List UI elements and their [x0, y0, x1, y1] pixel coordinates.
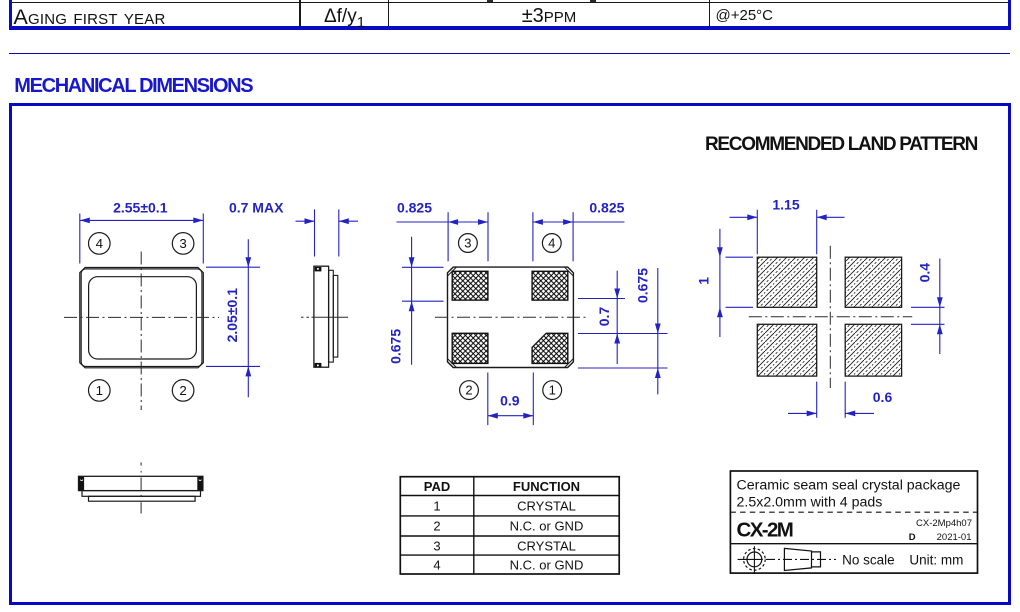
svg-text:1: 1 [695, 277, 711, 285]
svg-text:0.675: 0.675 [635, 268, 651, 303]
svg-text:0.825: 0.825 [589, 200, 624, 216]
svg-text:2021-01: 2021-01 [937, 532, 972, 543]
svg-text:0.6: 0.6 [873, 389, 893, 405]
svg-text:2: 2 [465, 382, 472, 397]
svg-text:2.5x2.0mm with 4 pads: 2.5x2.0mm with 4 pads [737, 495, 883, 511]
svg-text:N.C. or GND: N.C. or GND [510, 519, 584, 534]
svg-text:4: 4 [96, 236, 103, 251]
svg-text:1: 1 [433, 499, 440, 514]
svg-text:3: 3 [464, 235, 471, 250]
svg-text:4: 4 [433, 557, 440, 572]
svg-text:2: 2 [433, 519, 440, 534]
svg-text:0.7: 0.7 [596, 307, 612, 327]
svg-text:0.7 MAX: 0.7 MAX [229, 200, 284, 216]
svg-text:CX-2Mp4h07: CX-2Mp4h07 [916, 518, 972, 529]
svg-text:3: 3 [433, 538, 440, 553]
svg-text:0.9: 0.9 [500, 392, 520, 408]
svg-text:Unit: mm: Unit: mm [909, 553, 963, 568]
svg-text:0.4: 0.4 [917, 263, 933, 283]
svg-text:No scale: No scale [842, 553, 895, 568]
svg-text:0.675: 0.675 [388, 329, 404, 364]
svg-text:2.55±0.1: 2.55±0.1 [113, 200, 168, 216]
svg-text:Ceramic seam seal crystal pack: Ceramic seam seal crystal package [737, 478, 961, 494]
svg-text:FUNCTION: FUNCTION [513, 479, 580, 494]
svg-text:CRYSTAL: CRYSTAL [517, 499, 576, 514]
svg-text:PAD: PAD [424, 479, 450, 494]
svg-text:N.C. or GND: N.C. or GND [510, 557, 584, 572]
svg-text:0.825: 0.825 [397, 200, 432, 216]
svg-text:RECOMMENDED LAND PATTERN: RECOMMENDED LAND PATTERN [705, 134, 978, 155]
svg-text:CX-2M: CX-2M [737, 519, 793, 542]
svg-text:D: D [909, 532, 916, 543]
svg-text:2: 2 [179, 383, 186, 398]
svg-text:CRYSTAL: CRYSTAL [517, 538, 576, 553]
svg-text:1: 1 [549, 382, 556, 397]
svg-text:2.05±0.1: 2.05±0.1 [224, 288, 240, 343]
svg-text:3: 3 [179, 236, 186, 251]
svg-text:4: 4 [548, 235, 555, 250]
svg-text:1: 1 [96, 383, 103, 398]
svg-text:1.15: 1.15 [772, 197, 799, 213]
